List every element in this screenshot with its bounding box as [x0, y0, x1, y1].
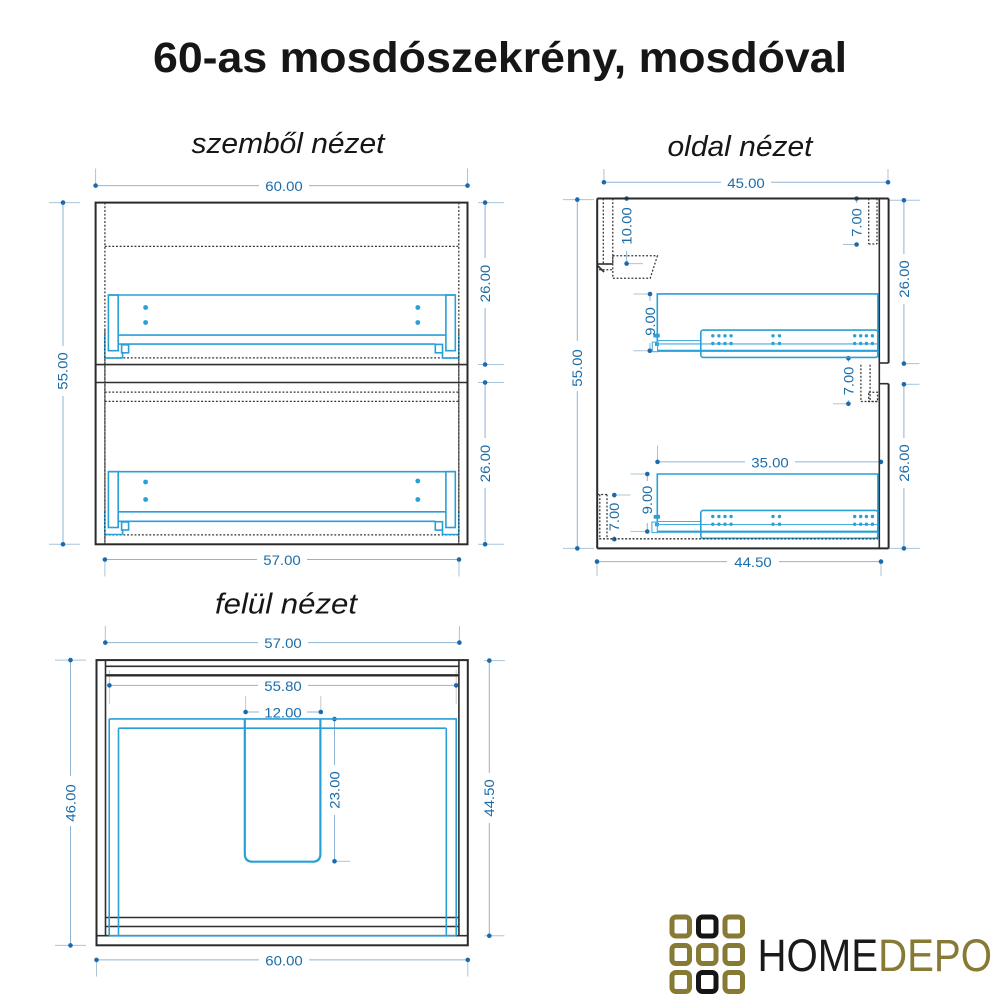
- svg-text:7.00: 7.00: [606, 503, 622, 532]
- svg-text:oldal nézet: oldal nézet: [668, 131, 815, 163]
- svg-text:55.00: 55.00: [55, 352, 71, 390]
- svg-text:57.00: 57.00: [264, 635, 302, 651]
- svg-text:44.50: 44.50: [481, 779, 497, 817]
- svg-text:26.00: 26.00: [896, 260, 912, 298]
- svg-text:10.00: 10.00: [619, 207, 635, 245]
- svg-text:9.00: 9.00: [639, 486, 655, 515]
- svg-text:26.00: 26.00: [477, 445, 493, 483]
- svg-text:35.00: 35.00: [751, 455, 789, 471]
- svg-text:45.00: 45.00: [727, 175, 765, 191]
- svg-text:HOMEDEPO: HOMEDEPO: [758, 930, 993, 981]
- svg-text:7.00: 7.00: [849, 208, 865, 237]
- svg-text:23.00: 23.00: [326, 771, 342, 809]
- svg-text:46.00: 46.00: [62, 784, 78, 822]
- svg-text:44.50: 44.50: [734, 554, 772, 570]
- svg-text:55.80: 55.80: [264, 678, 302, 694]
- svg-text:7.00: 7.00: [840, 367, 856, 396]
- svg-text:60.00: 60.00: [265, 178, 303, 194]
- svg-text:9.00: 9.00: [642, 307, 658, 336]
- svg-text:57.00: 57.00: [263, 552, 301, 568]
- svg-text:60-as mosdószekrény, mosdóval: 60-as mosdószekrény, mosdóval: [153, 34, 847, 82]
- svg-text:26.00: 26.00: [896, 444, 912, 482]
- svg-text:felül nézet: felül nézet: [215, 589, 359, 621]
- svg-text:55.00: 55.00: [569, 349, 585, 387]
- svg-text:60.00: 60.00: [265, 952, 303, 968]
- svg-text:26.00: 26.00: [477, 265, 493, 303]
- svg-text:szemből nézet: szemből nézet: [192, 128, 387, 160]
- svg-text:12.00: 12.00: [264, 705, 302, 721]
